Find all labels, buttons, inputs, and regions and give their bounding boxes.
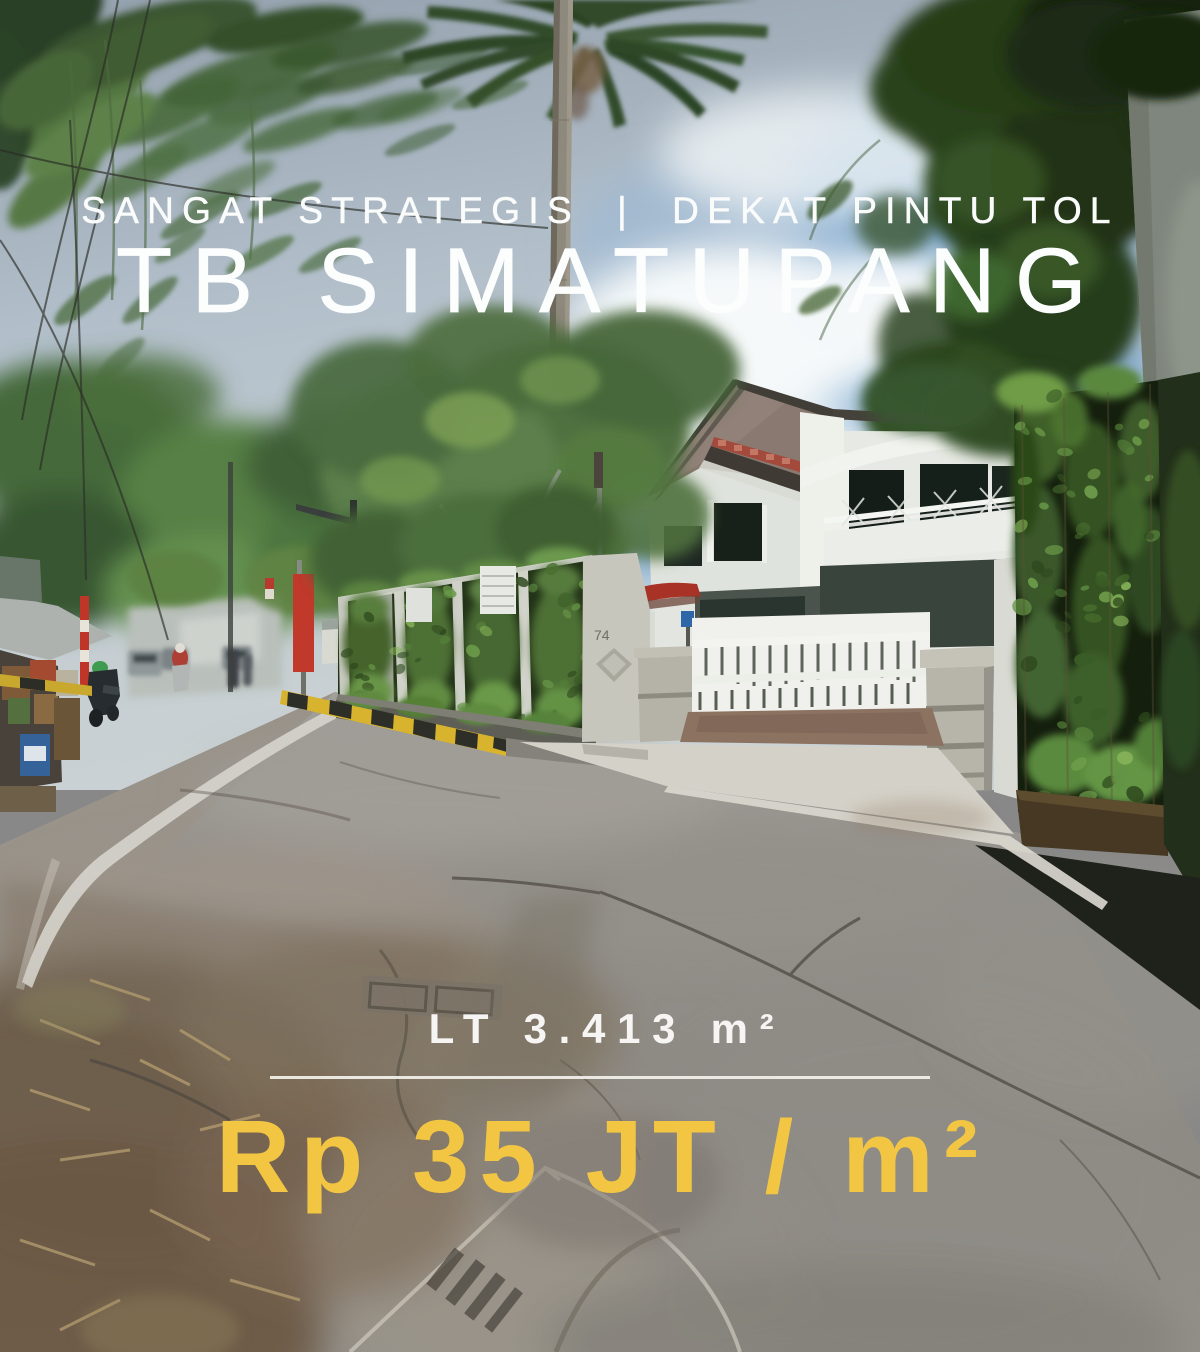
svg-text:74: 74 xyxy=(594,627,610,643)
